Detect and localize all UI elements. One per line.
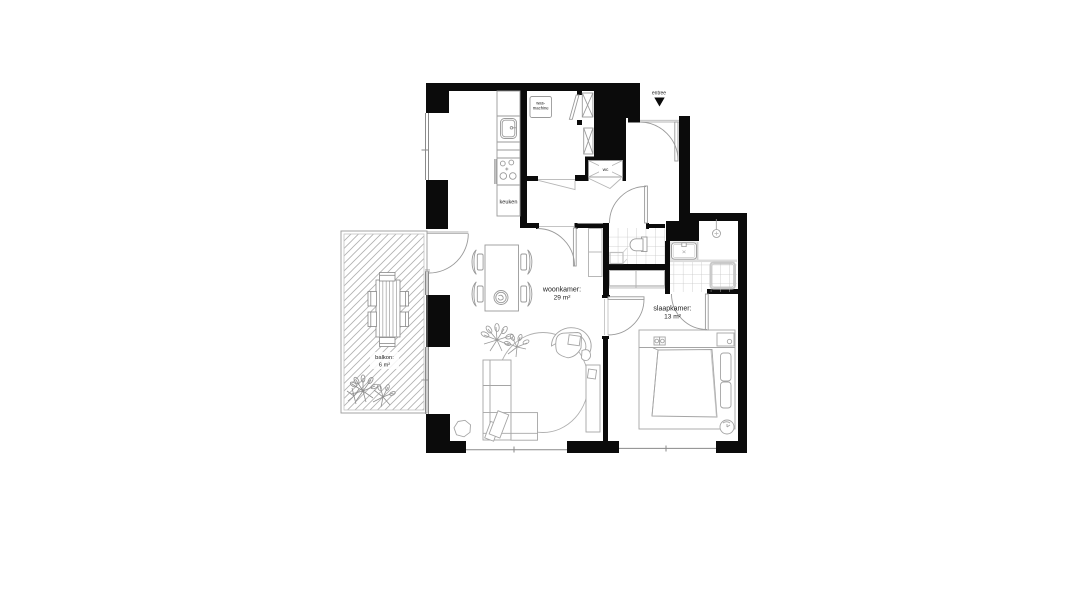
svg-text:entree: entree bbox=[652, 91, 666, 97]
svg-text:machine: machine bbox=[533, 106, 549, 111]
svg-text:6 m²: 6 m² bbox=[379, 363, 390, 369]
svg-text:wc: wc bbox=[603, 168, 609, 173]
svg-text:13 m²: 13 m² bbox=[664, 314, 682, 321]
svg-text:slaapkamer:: slaapkamer: bbox=[653, 306, 691, 313]
svg-text:keuken: keuken bbox=[499, 200, 517, 206]
svg-text:balkon:: balkon: bbox=[375, 355, 394, 361]
svg-text:woonkamer:: woonkamer: bbox=[542, 287, 581, 294]
svg-text:29 m²: 29 m² bbox=[554, 295, 572, 302]
